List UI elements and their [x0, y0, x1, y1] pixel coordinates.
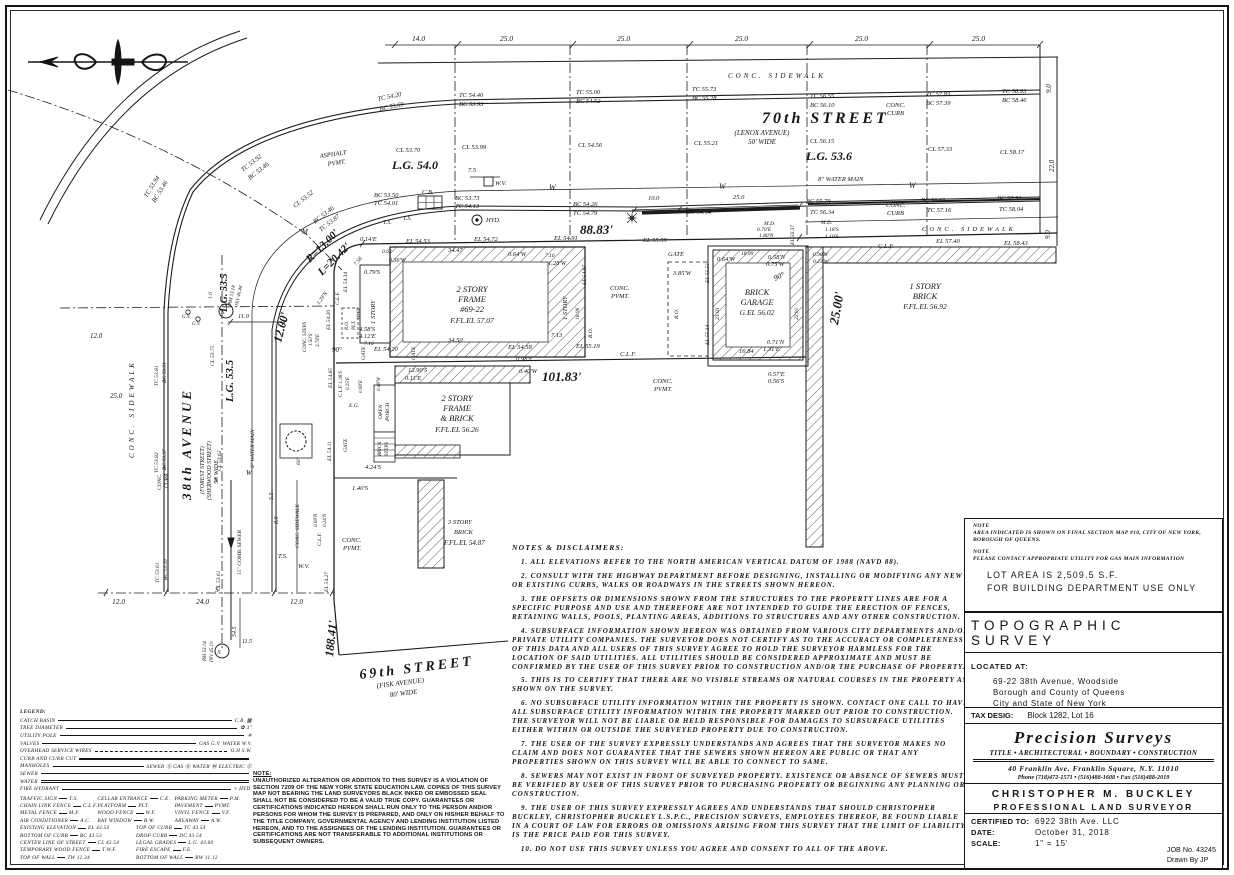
- map-label: 0.11'E: [405, 375, 421, 382]
- map-label: 15" COMB. SEWER: [237, 529, 243, 575]
- map-label: BC 55.79: [806, 198, 831, 205]
- map-label: G.V.: [192, 322, 201, 327]
- tax-designation-box: TAX DESIG: Block 1282, Lot 16: [965, 707, 1222, 723]
- legend-term: FIRE HYDRANT: [20, 786, 59, 792]
- date-label: DATE:: [971, 828, 1035, 837]
- map-label: TC 54.40: [459, 92, 484, 99]
- legend-abbr-row: TRAFFIC SIGNT.S.CELLAR ENTRANCEC.E.PARKI…: [20, 795, 252, 802]
- legend-abbr-cell: METAL FENCEM.F.: [20, 810, 97, 817]
- legend-term: MANHOLES: [20, 763, 50, 769]
- map-label: 0.64'W: [717, 256, 736, 263]
- map-label: 7.5: [468, 167, 477, 174]
- firm-name: Precision Surveys: [971, 728, 1216, 748]
- address-line2: Borough and County of Queens: [993, 688, 1216, 699]
- map-label: CONC.: [610, 285, 630, 292]
- map-label: CONC.: [157, 474, 163, 490]
- map-label: 0.75'W: [766, 261, 785, 268]
- firm-phone: Phone (718)472-1571 • (516)488-1608 • Fa…: [971, 774, 1216, 781]
- note-item: 1. ALL ELEVATIONS REFER TO THE NORTH AME…: [512, 558, 970, 567]
- legend-abbr-cell: PARKING METERP.M.: [175, 795, 252, 802]
- utility-pole-icon: [627, 213, 637, 223]
- map-label: CL 58.17: [1000, 149, 1025, 156]
- map-label: 0.40'W: [519, 368, 538, 375]
- map-label: 12.0: [112, 597, 125, 606]
- map-label: (LENOX AVENUE): [735, 129, 791, 137]
- map-label: CONC.: [653, 378, 673, 385]
- map-label: TC 57.16: [927, 207, 952, 214]
- map-label: (SHERWOOD STREET): [206, 441, 213, 500]
- map-label: C.B.: [422, 189, 434, 196]
- map-label: 0.64'W: [508, 251, 527, 258]
- map-label: & BRICK: [440, 413, 475, 423]
- legend-abbr: GAS G.V. WATER W.V.: [199, 741, 252, 747]
- legend-row: SEWER: [20, 770, 252, 778]
- map-label: CONC.: [886, 102, 906, 109]
- legend-abbr-cell: CENTER LINE OF STREETCL 43.54: [20, 839, 136, 846]
- map-label: PVMT.: [610, 293, 629, 300]
- surveyor-title: PROFESSIONAL LAND SURVEYOR: [971, 802, 1216, 812]
- map-label: 16.82: [356, 307, 362, 320]
- map-label: 24.0: [196, 597, 209, 606]
- map-label: EL 54.34: [342, 272, 349, 293]
- map-label: BC 53.37: [162, 449, 168, 470]
- map-label: FRAME: [457, 294, 487, 304]
- map-label: PVMT.: [342, 545, 361, 552]
- legend-abbr-row: TEMPORARY WOOD FENCET.W.F.FIRE ESCAPEF.E…: [20, 847, 252, 854]
- note-item: 9. THE USER OF THIS SURVEY EXPRESSLY AGR…: [512, 804, 970, 840]
- map-label: PORCH: [385, 402, 391, 422]
- map-label: (FOREST STREET): [199, 446, 206, 494]
- gas-valve-icon: [186, 310, 190, 314]
- map-label: 7.16: [545, 253, 555, 259]
- legend: LEGEND: CATCH BASINC.B. ▦TREE DIAMETER✿ …: [20, 709, 252, 861]
- map-label: BC 53.39: [163, 559, 169, 580]
- legend-abbr-cell: CELLAR ENTRANCEC.E.: [97, 795, 174, 802]
- curb-legend-icon: [79, 758, 249, 760]
- map-label: F.FL.EL 56.92: [902, 302, 947, 311]
- water-legend-icon: [41, 780, 249, 783]
- legend-abbr: ✿ 3": [240, 725, 252, 731]
- valves-legend-icon: [42, 743, 196, 744]
- map-label: L.G. 54.0: [391, 158, 438, 172]
- note-item: 10. DO NOT USE THIS SURVEY UNLESS YOU AG…: [512, 845, 970, 854]
- pole-legend-icon: [60, 735, 245, 736]
- legend-abbr: ✳: [247, 733, 252, 739]
- map-label: CONC. SIDEWALK: [922, 226, 1016, 233]
- map-label: 0.98'W: [813, 252, 829, 258]
- notes-disclaimers: NOTES & DISCLAIMERS: 1. ALL ELEVATIONS R…: [512, 543, 970, 859]
- drawn-by: Drawn By JP: [1167, 855, 1216, 865]
- legend-term: UTILITY POLE: [20, 733, 57, 739]
- map-label: 25.0: [735, 34, 748, 43]
- property-address: 69-22 38th Avenue, Woodside Borough and …: [993, 677, 1216, 709]
- notes-list: 1. ALL ELEVATIONS REFER TO THE NORTH AME…: [512, 558, 970, 854]
- map-label: 25.0: [500, 34, 513, 43]
- map-label: GATE: [668, 251, 684, 258]
- map-label: EL 56.37: [790, 225, 796, 246]
- map-label: GATE: [411, 346, 417, 360]
- map-label: GATE: [343, 438, 349, 452]
- map-label: TC 56.55: [810, 93, 835, 100]
- map-label: HYD.: [485, 217, 501, 224]
- sewer-legend-icon: [41, 773, 249, 774]
- legend-abbr-cell: LEGAL GRADESL.G. 43.60: [136, 839, 252, 846]
- map-label: 12.0: [290, 597, 303, 606]
- map-label: BC 57.51: [997, 195, 1022, 202]
- map-label: 88.83': [580, 222, 613, 237]
- map-label: 1.29'N: [316, 291, 329, 307]
- map-label: 12.0: [90, 332, 103, 340]
- map-label: CURB: [887, 110, 904, 117]
- map-label: 1.40'S: [352, 485, 369, 492]
- map-label: 4.58'S: [359, 326, 376, 333]
- map-label: 3.85'W: [672, 270, 692, 277]
- map-label: 25.0: [855, 34, 868, 43]
- map-label: EL 54.11: [326, 441, 333, 462]
- map-label: BC 53.69: [379, 101, 405, 113]
- map-label: EL 54.27: [323, 572, 330, 593]
- legend-abbr-cell: TOP OF CURBTC 43.54: [136, 825, 252, 832]
- map-label: EL 54.97: [581, 265, 588, 286]
- legend-row: TREE DIAMETER✿ 3": [20, 725, 252, 733]
- map-label: BRICK: [454, 529, 473, 536]
- map-label: CURB: [164, 473, 170, 488]
- map-label: 50' WIDE: [748, 138, 776, 146]
- map-label: 1.18'S: [825, 227, 839, 233]
- legend-abbr-cell: TEMPORARY WOOD FENCET.W.F.: [20, 847, 136, 854]
- map-label: EL 58.43: [1003, 240, 1028, 247]
- map-label: CONC. SIDEWALK: [295, 504, 301, 548]
- map-label: BRICK: [745, 287, 771, 297]
- map-label: BC 58.46: [1002, 97, 1027, 104]
- map-label: 9.0: [1045, 84, 1053, 93]
- wires-legend-icon: [95, 751, 228, 752]
- legend-abbr: O.H S.W.: [230, 748, 252, 754]
- street-name-70th: 70th STREET: [762, 110, 889, 127]
- map-label: 34.47: [447, 247, 463, 254]
- legend-row: OVERHEAD SERVICE WIRESO.H S.W.: [20, 747, 252, 755]
- map-label: EL 54.53: [405, 238, 430, 245]
- surveyor-box: CHRISTOPHER M. BUCKLEY PROFESSIONAL LAND…: [965, 783, 1222, 813]
- legend-abbr-row: CENTER LINE OF STREETCL 43.54LEGAL GRADE…: [20, 839, 252, 846]
- survey-title: TOPOGRAPHIC SURVEY: [965, 612, 1222, 652]
- map-label: 18.99: [741, 251, 754, 257]
- map-label: 1.31'E: [763, 346, 780, 353]
- tax-label: TAX DESIG:: [971, 711, 1013, 720]
- manholes-legend-icon: [53, 766, 144, 767]
- map-label: 5.5: [269, 493, 275, 501]
- map-label: BC 54.26: [573, 201, 598, 208]
- map-label: 2 STORY: [456, 284, 488, 294]
- map-label: 12.90'S: [408, 367, 428, 374]
- map-label: CONC. SIDEWALK: [128, 360, 136, 458]
- map-label: EL 55.34: [704, 325, 711, 346]
- legend-term: OVERHEAD SERVICE WIRES: [20, 748, 92, 754]
- legend-abbr-cell: VINYL FENCEV.F.: [175, 810, 252, 817]
- alteration-note: NOTE: UNAUTHORIZED ALTERATION OR ADDITIO…: [253, 771, 505, 846]
- map-label: EL 54.20: [325, 310, 332, 331]
- lot-area: LOT AREA IS 2,509.5 S.F. FOR BUILDING DE…: [987, 569, 1216, 595]
- map-label: TC 53.82: [154, 452, 160, 473]
- map-label: 14.0: [412, 34, 425, 43]
- map-label: 0.62: [382, 249, 392, 255]
- map-label: EL 55.19: [575, 343, 600, 350]
- map-label: EL 54.20: [373, 346, 398, 353]
- note-item: 7. THE USER OF THE SURVEY EXPRESSLY UNDE…: [512, 740, 970, 767]
- map-label: 1 STORY: [909, 281, 941, 291]
- legend-abbr-cell: FIRE ESCAPEF.E.: [136, 847, 252, 854]
- job-number: JOB No. 43245: [1167, 845, 1216, 855]
- firm-services: TITLE • ARCHITECTURAL • BOUNDARY • CONST…: [973, 749, 1214, 762]
- map-label: F.FL.EL 56.26: [434, 425, 479, 434]
- map-label: BC 53.93: [459, 101, 484, 108]
- map-label: E.G.: [348, 403, 359, 409]
- map-label: BC 56.63: [921, 197, 946, 204]
- map-label: PVMT.: [653, 386, 672, 393]
- map-label: 0.48'W: [377, 376, 382, 391]
- map-label: RM 53.14: [203, 641, 208, 662]
- tree-legend-icon: [66, 728, 237, 729]
- map-label: C.L.F.: [878, 243, 894, 250]
- map-label: 0.36'W: [389, 258, 407, 264]
- map-label: 7.13: [551, 332, 563, 339]
- map-label: 8" WATER MAIN: [250, 429, 256, 468]
- located-at-label: LOCATED AT:: [971, 662, 1028, 671]
- map-label: 1.50'S: [309, 333, 314, 346]
- scale-value: 1" = 15': [1035, 839, 1068, 848]
- legend-abbr-cell: BOTTOM OF CURBBC 43.53: [20, 832, 136, 839]
- title-block: TOPOGRAPHIC SURVEY LOCATED AT: 69-22 38t…: [964, 612, 1223, 869]
- map-label: CURB: [887, 210, 904, 217]
- map-label: 25.0: [972, 34, 985, 43]
- map-label: BC 55.28: [692, 95, 717, 102]
- note-item: 6. NO SUBSURFACE UTILITY INFORMATION WIT…: [512, 699, 970, 735]
- gas-valve-icon: [196, 317, 200, 321]
- legend-abbr-cell: CHAIN LINK FENCEC.L.F.: [20, 802, 97, 809]
- map-label: 22.0: [1048, 159, 1056, 172]
- title-column: NOTE AREA INDICATED IS SHOWN ON FINAL SE…: [964, 518, 1223, 869]
- map-label: 4.12'E: [359, 333, 376, 340]
- map-label: F.FL.EL 54.87: [443, 539, 485, 547]
- map-label: EL 57.40: [935, 238, 960, 245]
- map-label: G.EL 56.02: [740, 308, 775, 317]
- located-at-box: LOCATED AT: 69-22 38th Avenue, Woodside …: [965, 652, 1222, 707]
- map-label: S: [215, 586, 219, 594]
- legend-abbr: ○ HYD.: [234, 786, 252, 792]
- map-label: CL 55.21: [694, 140, 718, 147]
- legend-abbr-row: METAL FENCEM.F.WOOD FENCEW.F.VINYL FENCE…: [20, 810, 252, 817]
- map-label: #69-22: [460, 304, 485, 314]
- side-notes-box: NOTE AREA INDICATED IS SHOWN ON FINAL SE…: [964, 518, 1223, 612]
- map-label: BRICK: [378, 441, 383, 456]
- map-label: STEPS: [385, 442, 390, 456]
- legend-abbr-row: EXISTING ELEVATIONEL 43.54TOP OF CURBTC …: [20, 825, 252, 832]
- certified-to-value: 6922 38th Ave. LLC: [1035, 817, 1120, 826]
- map-label: BC 57.39: [926, 100, 951, 107]
- legend-abbr: SEWER Ⓢ GAS Ⓖ WATER Ⓦ ELECTRIC Ⓔ: [147, 763, 252, 770]
- legend-row: CATCH BASINC.B. ▦: [20, 717, 252, 725]
- side-note-2-body: PLEASE CONTACT APPROPRIATE UTILITY FOR G…: [973, 556, 1184, 562]
- map-label: 0.68'N: [314, 513, 319, 527]
- map-label: 22.91: [794, 307, 800, 320]
- map-label: C.L.F.: [620, 351, 636, 358]
- map-label: W.V.: [298, 563, 310, 570]
- map-label: 0.14'E: [360, 236, 377, 243]
- map-label: CONC.: [886, 202, 906, 209]
- map-label: 60': [296, 458, 302, 466]
- legend-abbr-row: AIR CONDITIONERA.C.BAY WINDOWB.W.AREAWAY…: [20, 817, 252, 824]
- job-info: JOB No. 43245 Drawn By JP: [1167, 845, 1216, 865]
- map-label: W: [549, 183, 557, 192]
- legend-abbr-cell: DROP CURBDC 43.54: [136, 832, 252, 839]
- map-label: CONC. STEPS: [303, 321, 308, 352]
- map-label: BRICK: [913, 291, 939, 301]
- map-label: FRAME: [442, 403, 472, 413]
- map-label: CONC. SIDEWALK: [728, 72, 826, 80]
- side-note-1: NOTE AREA INDICATED IS SHOWN ON FINAL SE…: [973, 523, 1216, 544]
- map-label: TC 55.00: [576, 89, 601, 96]
- side-note-1-body: AREA INDICATED IS SHOWN ON FINAL SECTION…: [973, 530, 1201, 543]
- map-label: 1 STORY: [562, 295, 569, 320]
- legend-abbr-cell: TRAFFIC SIGNT.S.: [20, 795, 97, 802]
- map-label: PVMT.: [326, 158, 346, 168]
- map-label: 0.56'S: [768, 378, 785, 385]
- map-label: 12.00': [270, 310, 292, 344]
- map-label: F.FL.EL 57.07: [449, 316, 494, 325]
- map-label: 8.0: [274, 517, 280, 525]
- map-label: BC 53.51: [162, 362, 168, 383]
- map-label: S: [218, 650, 221, 656]
- map-label: 80' WIDE: [389, 688, 418, 699]
- legend-abbr-cell: AREAWAYA.W.: [175, 817, 252, 824]
- water-valve-icon: [484, 177, 493, 186]
- map-label: EL 54.72: [473, 236, 498, 243]
- legend-abbr-rows: TRAFFIC SIGNT.S.CELLAR ENTRANCEC.E.PARKI…: [20, 795, 252, 862]
- map-label: BC 56.10: [810, 102, 835, 109]
- legend-row: VALVESGAS G.V. WATER W.V.: [20, 740, 252, 748]
- map-label: 1.0: [208, 292, 214, 299]
- legend-row: MANHOLESSEWER Ⓢ GAS Ⓖ WATER Ⓦ ELECTRIC Ⓔ: [20, 763, 252, 771]
- map-label: 11.5: [242, 639, 252, 645]
- map-label: TC 55.73: [692, 86, 717, 93]
- legend-term: VALVES: [20, 741, 39, 747]
- firm-address: 40 Franklin Ave. Franklin Square, N.Y. 1…: [971, 764, 1216, 773]
- map-label: R.O.: [345, 321, 350, 331]
- map-label: GATE: [361, 346, 367, 360]
- map-label: CL 54.56: [578, 142, 603, 149]
- alteration-note-body: UNAUTHORIZED ALTERATION OR ADDITION TO T…: [253, 778, 504, 845]
- side-note-2: NOTE PLEASE CONTACT APPROPRIATE UTILITY …: [973, 549, 1216, 563]
- legend-abbr-row: TOP OF WALLTW 12.34BOTTOM OF WALLBW 11.1…: [20, 854, 252, 861]
- map-label: R.O.: [674, 309, 680, 320]
- legend-symbol-rows: CATCH BASINC.B. ▦TREE DIAMETER✿ 3"UTILIT…: [20, 717, 252, 793]
- legend-abbr-cell: PAVEMENTPVMT.: [175, 802, 252, 809]
- map-label: TC 53.61: [155, 562, 161, 583]
- map-label: R.O.: [588, 328, 594, 339]
- map-label: 16.84: [739, 348, 754, 355]
- side-note-2-title: NOTE: [973, 549, 1216, 556]
- map-label: CL 53.62: [217, 450, 223, 471]
- map-label: 0.58'N: [768, 254, 786, 261]
- map-label: TC 54.79: [573, 210, 598, 217]
- map-label: 9.0: [1044, 230, 1052, 239]
- map-label: CL 57.33: [928, 146, 953, 153]
- note-item: 4. SUBSURFACE INFORMATION SHOWN HEREON W…: [512, 627, 970, 672]
- map-label: EL 55.59: [642, 237, 667, 244]
- map-label: 0.98'E: [516, 356, 533, 363]
- map-label: TC 54.13: [455, 203, 480, 210]
- map-label: 1.28'W: [548, 260, 567, 267]
- map-label: T.S.: [383, 220, 392, 226]
- map-label: GARAGE: [740, 297, 774, 307]
- map-label: 25.0: [733, 194, 745, 201]
- map-label: EL 54.58: [507, 344, 532, 351]
- map-label: 4.24'S: [365, 464, 382, 471]
- map-label: TC 53.81: [154, 365, 160, 386]
- legend-term: CURB AND CURB CUT: [20, 756, 76, 762]
- map-label: 25.00': [826, 290, 847, 326]
- map-label: CL 53.99: [462, 144, 487, 151]
- map-label: DC 54.94: [685, 209, 712, 216]
- map-label: 25.0: [110, 392, 123, 400]
- legend-row: FIRE HYDRANT○ HYD.: [20, 785, 252, 793]
- survey-page: 14.025.025.025.025.025.09.022.09.0CONC. …: [0, 0, 1234, 875]
- map-label: 1.10'S: [825, 234, 839, 240]
- map-label: BC 54.52: [576, 98, 601, 105]
- legend-term: SEWER: [20, 771, 38, 777]
- certified-to-label: CERTIFIED TO:: [971, 817, 1035, 826]
- street-name-38th: 38th AVENUE: [179, 388, 194, 501]
- date-value: October 31, 2018: [1035, 828, 1110, 837]
- surveyor-name: CHRISTOPHER M. BUCKLEY: [971, 789, 1216, 800]
- map-label: 0.24'N: [323, 513, 328, 527]
- notes-heading: NOTES & DISCLAIMERS:: [512, 543, 970, 552]
- legend-abbr-row: CHAIN LINK FENCEC.L.F.PLATFORMPLT.PAVEME…: [20, 802, 252, 809]
- map-label: L.G. 53.5: [224, 359, 236, 403]
- legend-term: TREE DIAMETER: [20, 725, 63, 731]
- note-item: 8. SEWERS MAY NOT EXIST IN FRONT OF SURV…: [512, 772, 970, 799]
- lot-area-line1: LOT AREA IS 2,509.5 S.F.: [987, 569, 1216, 582]
- legend-row: WATER: [20, 778, 252, 786]
- map-label: CL 56.15: [810, 138, 835, 145]
- legend-heading: LEGEND:: [20, 709, 252, 715]
- map-label: 90°: [332, 346, 342, 354]
- map-label: W: [909, 181, 917, 190]
- map-label: C.L.F. 1.38'S: [339, 371, 344, 397]
- map-label: 0.25'E: [346, 377, 351, 390]
- map-label: 10.0: [648, 195, 660, 202]
- legend-abbr-row: BOTTOM OF CURBBC 43.53DROP CURBDC 43.54: [20, 832, 252, 839]
- map-label: L.G. 53.5: [219, 274, 230, 313]
- map-label: C.L.F.: [335, 291, 341, 305]
- map-label: PLT.: [352, 320, 357, 331]
- map-label: 188.41': [322, 619, 340, 657]
- map-label: 0.23'W: [813, 259, 829, 265]
- map-label: INV 45.19: [210, 641, 215, 663]
- map-label: T.S.: [278, 553, 288, 560]
- legend-abbr-cell: TOP OF WALLTW 12.34: [20, 854, 136, 861]
- map-label: L.G. 53.6: [805, 149, 852, 163]
- legend-abbr-cell: BAY WINDOWB.W.: [97, 817, 174, 824]
- map-label: 0.71'N: [767, 339, 785, 346]
- map-label: TC 58.93: [1002, 88, 1027, 95]
- legend-abbr-cell: AIR CONDITIONERA.C.: [20, 817, 97, 824]
- legend-abbr-cell: EXISTING ELEVATIONEL 43.54: [20, 825, 136, 832]
- side-note-1-title: NOTE: [973, 523, 1216, 530]
- note-item: 5. THIS IS TO CERTIFY THAT THERE ARE NO …: [512, 676, 970, 694]
- legend-abbr-cell: BOTTOM OF WALLBW 11.12: [136, 854, 252, 861]
- map-label: 18.96: [575, 307, 581, 320]
